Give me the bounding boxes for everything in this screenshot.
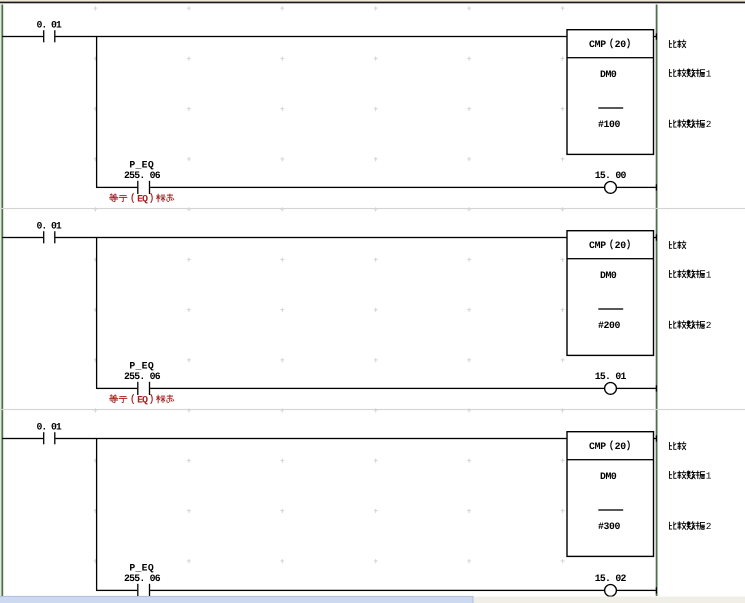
svg-text:20: 20	[615, 39, 627, 50]
svg-text:255. 06: 255. 06	[124, 573, 161, 584]
svg-text:15. 01: 15. 01	[595, 371, 627, 382]
svg-text:#300: #300	[598, 521, 620, 532]
svg-text:255. 06: 255. 06	[124, 170, 161, 181]
svg-text:20: 20	[615, 441, 627, 452]
svg-text:DM0: DM0	[600, 270, 617, 281]
svg-text:2: 2	[706, 119, 712, 130]
svg-text:#200: #200	[598, 320, 620, 331]
svg-text:1: 1	[706, 470, 712, 481]
svg-text:EQ: EQ	[137, 394, 148, 405]
svg-text:EQ: EQ	[137, 193, 148, 204]
svg-text:DM0: DM0	[600, 69, 617, 80]
svg-text:15. 00: 15. 00	[595, 170, 627, 181]
svg-text:CMP: CMP	[589, 39, 606, 50]
svg-text:2: 2	[706, 320, 712, 331]
svg-text:CMP: CMP	[589, 240, 606, 251]
svg-text:1: 1	[706, 269, 712, 280]
svg-text:15. 02: 15. 02	[595, 573, 627, 584]
svg-text:0. 01: 0. 01	[37, 220, 62, 231]
svg-text:DM0: DM0	[600, 471, 617, 482]
svg-text:0. 01: 0. 01	[37, 19, 62, 30]
svg-text:P_EQ: P_EQ	[129, 159, 154, 170]
svg-text:255. 06: 255. 06	[124, 371, 161, 382]
svg-text:P_EQ: P_EQ	[129, 360, 154, 371]
svg-text:CMP: CMP	[589, 441, 606, 452]
svg-text:20: 20	[615, 240, 627, 251]
svg-text:2: 2	[706, 521, 712, 532]
svg-text:P_EQ: P_EQ	[129, 562, 154, 573]
svg-text:1: 1	[706, 68, 712, 79]
svg-text:0. 01: 0. 01	[37, 421, 62, 432]
svg-text:#100: #100	[598, 119, 620, 130]
